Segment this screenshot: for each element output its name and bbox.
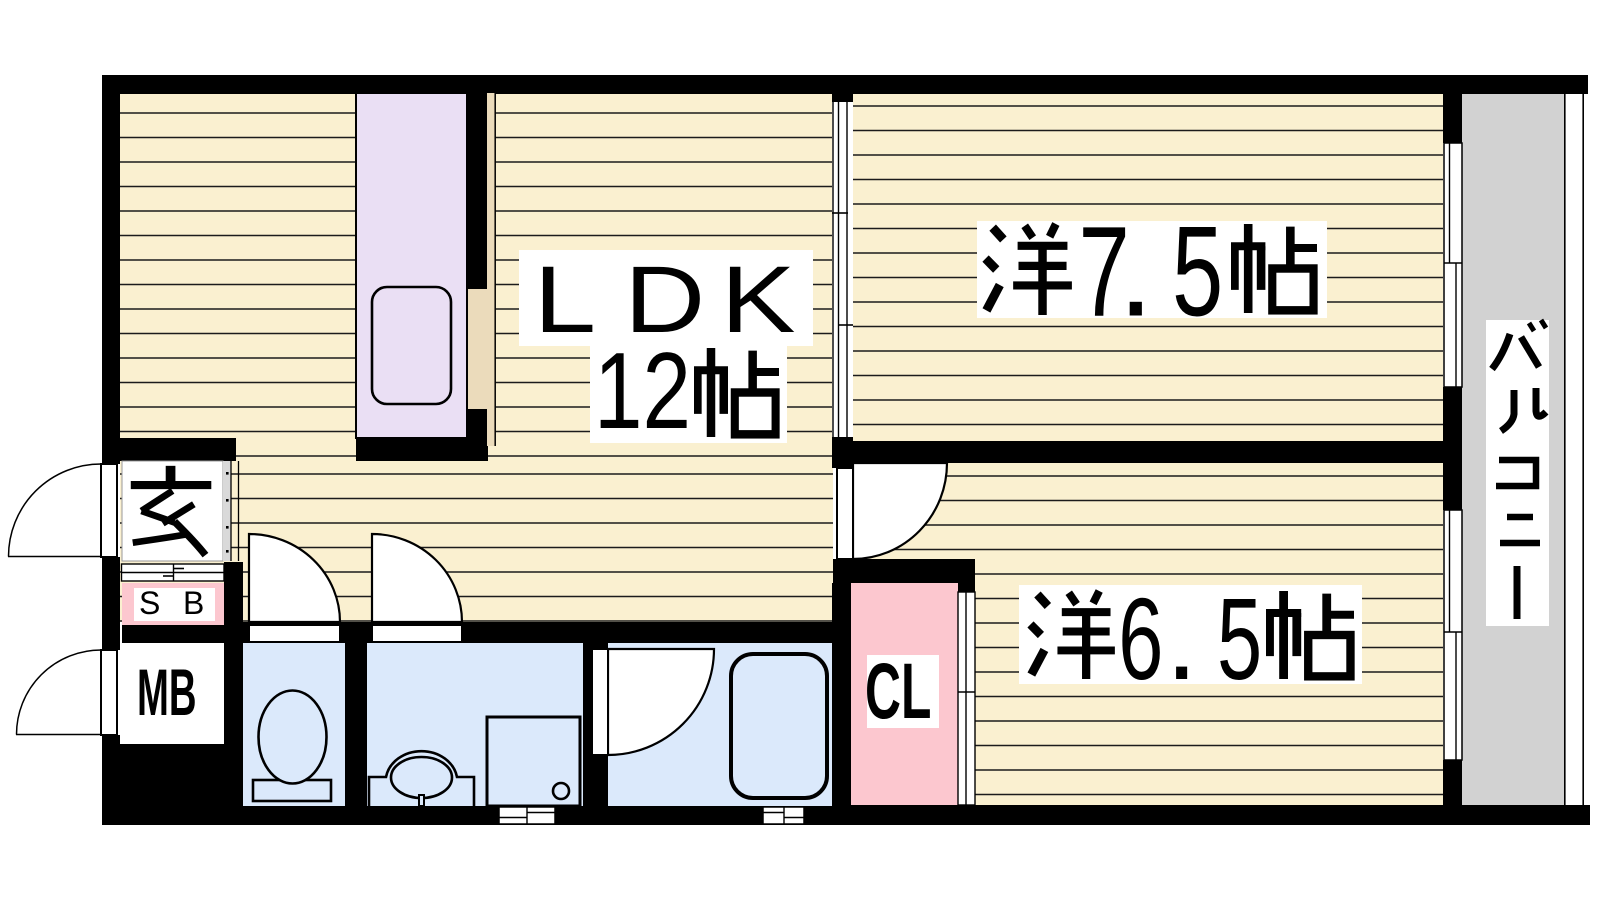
svg-text:6: 6 (1118, 575, 1163, 705)
svg-text:CL: CL (865, 646, 931, 735)
svg-text:L: L (534, 247, 596, 353)
svg-text:.: . (1166, 574, 1198, 704)
svg-text:MB: MB (137, 656, 197, 729)
svg-text:S: S (139, 585, 160, 621)
svg-text:12: 12 (594, 330, 691, 451)
svg-text:5: 5 (1172, 200, 1223, 343)
svg-text:B: B (183, 585, 204, 621)
svg-text:5: 5 (1217, 575, 1262, 705)
svg-text:.: . (1118, 201, 1154, 344)
svg-text:K: K (721, 247, 796, 353)
